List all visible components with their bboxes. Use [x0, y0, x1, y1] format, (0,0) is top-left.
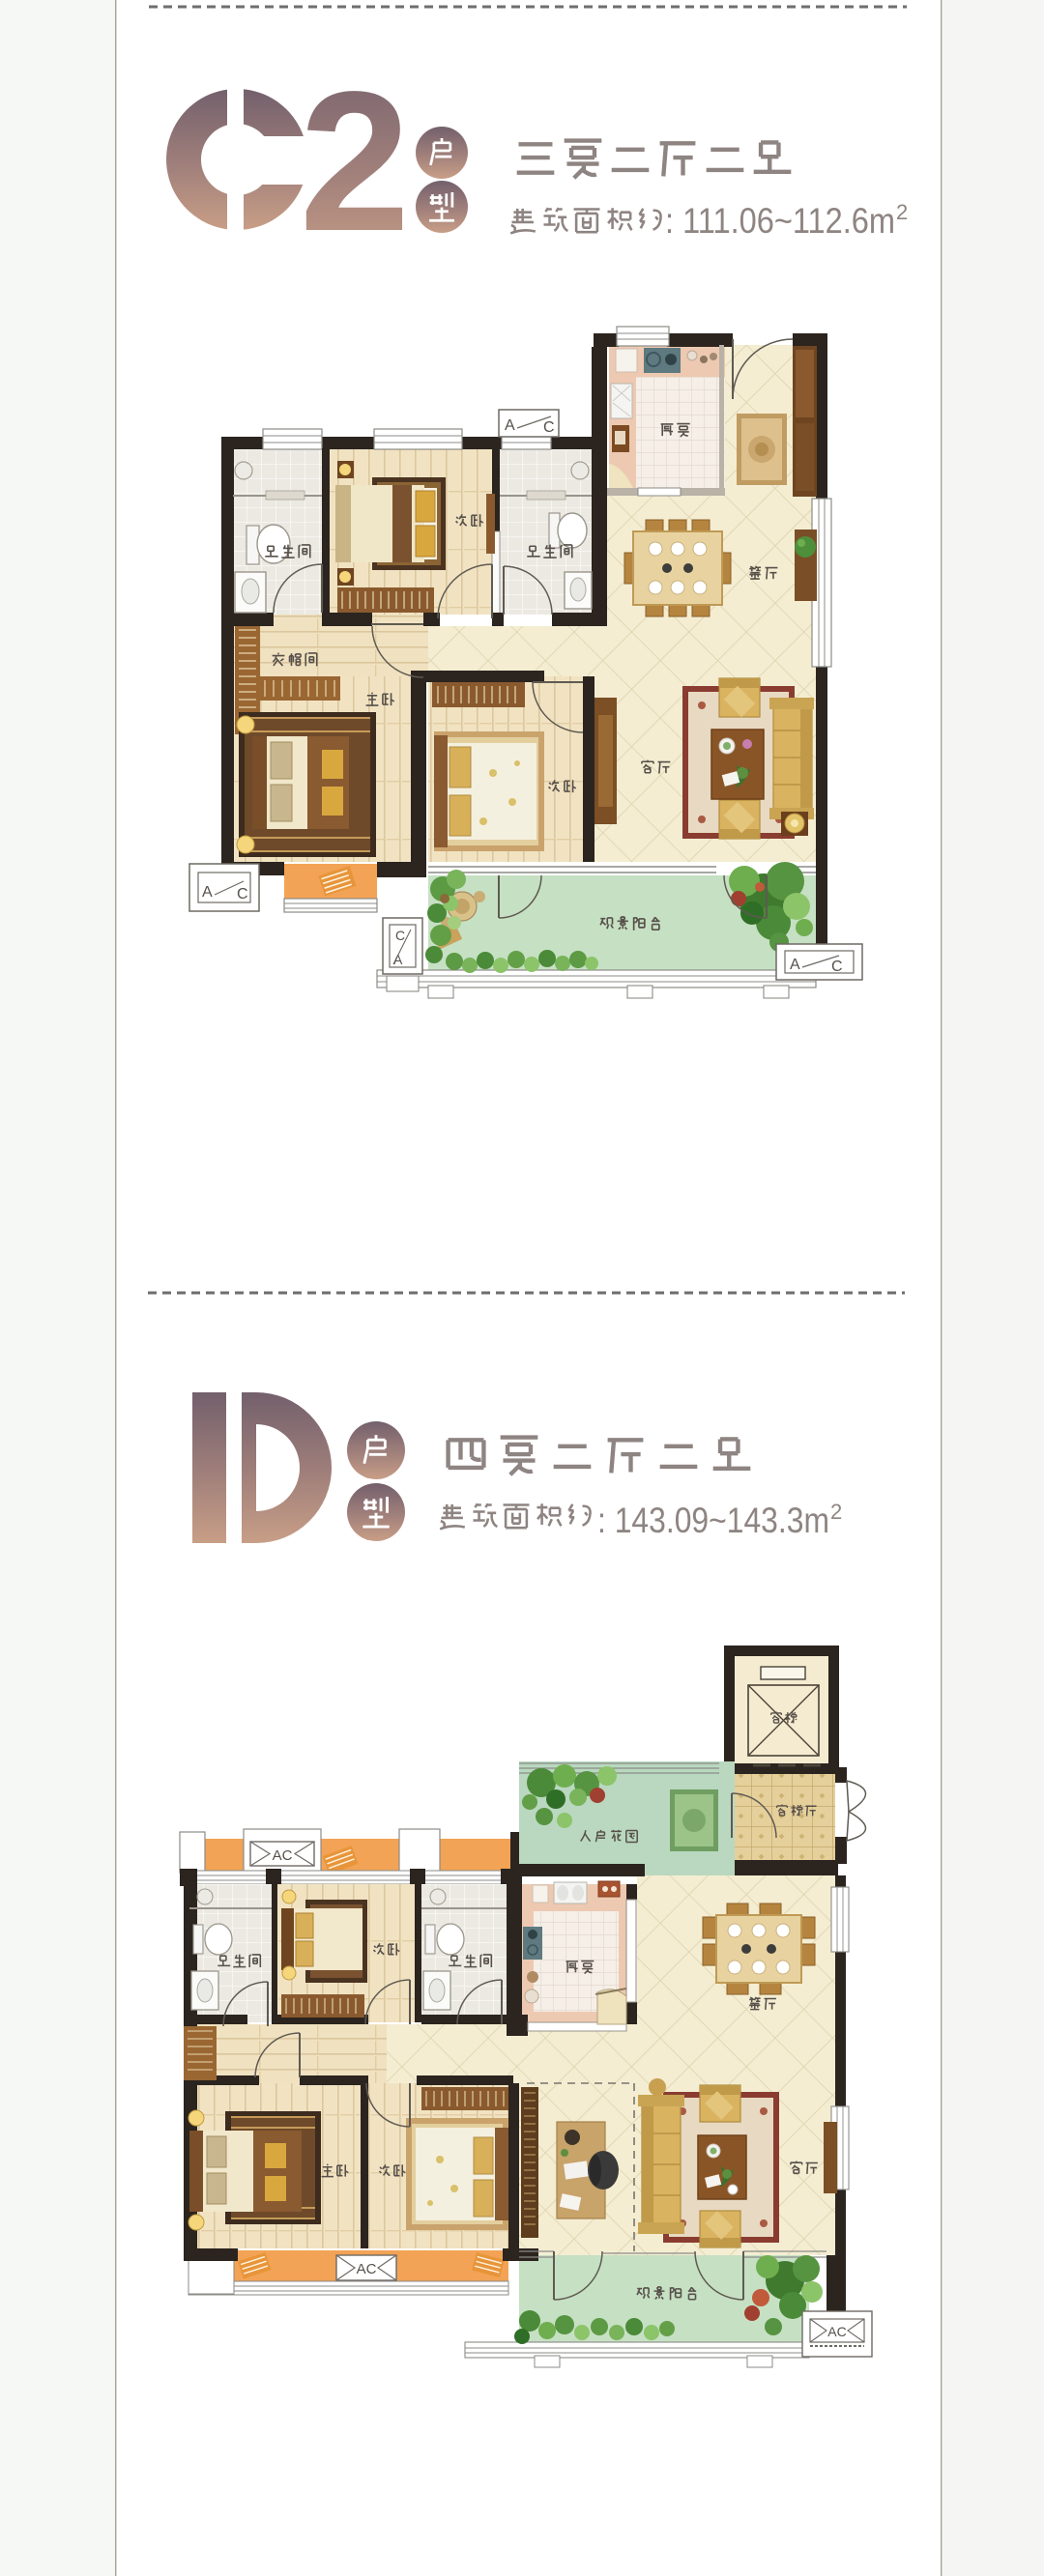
- svg-text:2: 2: [830, 1500, 842, 1524]
- svg-text:AC: AC: [273, 1847, 293, 1864]
- svg-text:AC: AC: [357, 2261, 377, 2277]
- svg-text:A: A: [393, 952, 403, 967]
- svg-text:2: 2: [896, 200, 908, 224]
- svg-text:A: A: [505, 417, 515, 434]
- svg-text:C: C: [543, 419, 555, 436]
- svg-text:2: 2: [300, 50, 411, 272]
- svg-text:C: C: [237, 886, 248, 902]
- svg-text:A: A: [202, 884, 213, 901]
- svg-text:AC: AC: [827, 2324, 846, 2339]
- svg-text:C: C: [395, 928, 405, 943]
- svg-text:C: C: [831, 959, 843, 975]
- svg-text:: 143.09~143.3m: : 143.09~143.3m: [597, 1501, 829, 1540]
- svg-text:: 111.06~112.6m: : 111.06~112.6m: [665, 201, 895, 241]
- svg-text:A: A: [790, 957, 800, 973]
